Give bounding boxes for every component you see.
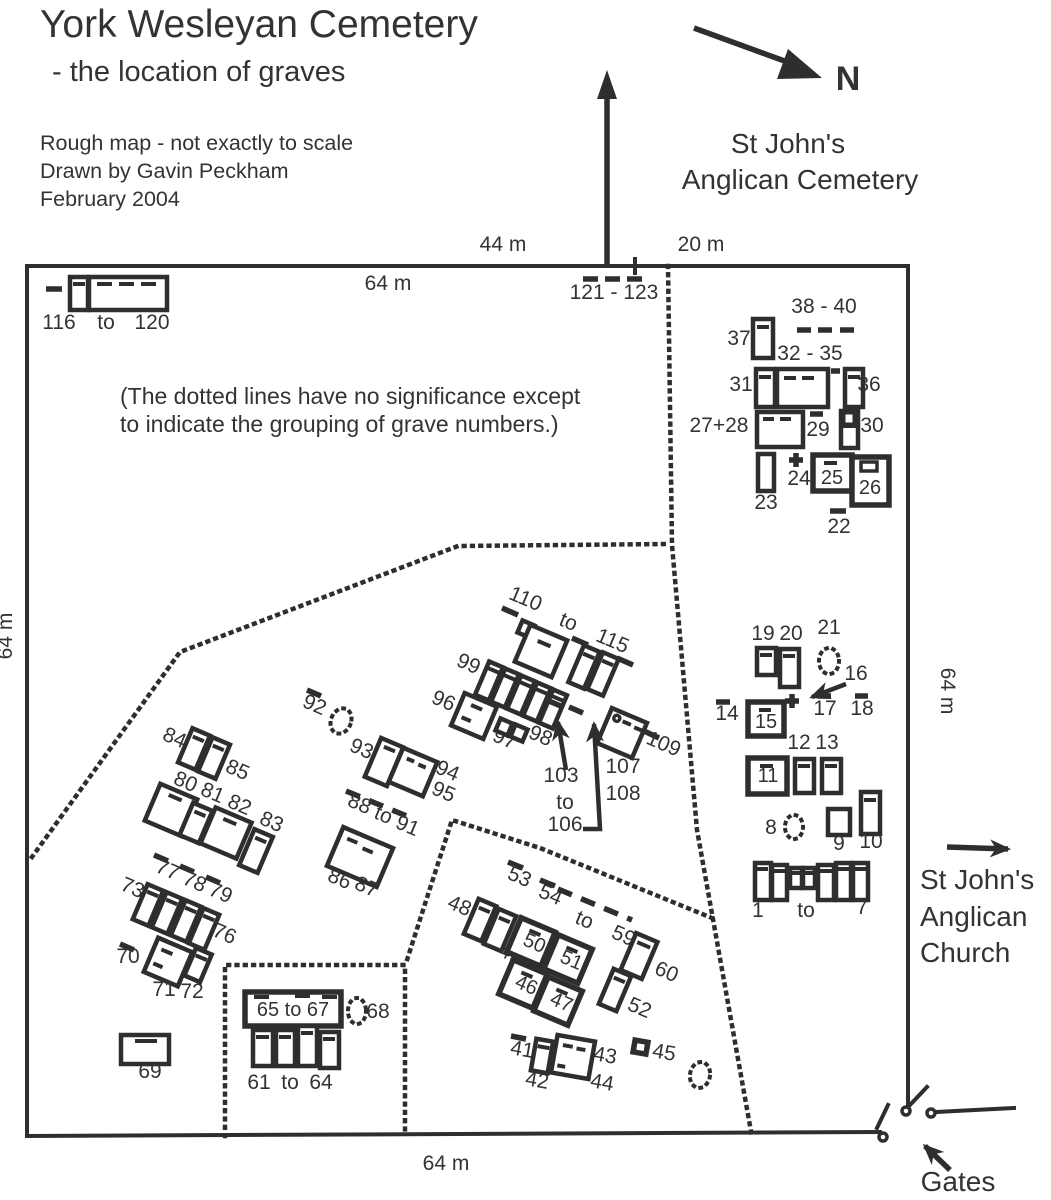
grave-label: 64 xyxy=(309,1071,333,1094)
grave-marking xyxy=(861,462,877,471)
grave-label: 85 xyxy=(222,755,252,785)
grave-label: 44 xyxy=(589,1069,616,1096)
grave-label: to xyxy=(97,311,115,334)
grave-rect xyxy=(758,454,774,491)
grave-rect xyxy=(756,369,775,407)
grave-label: 36 xyxy=(857,373,880,396)
headstone-dash xyxy=(538,1046,550,1048)
grave-label: 43 xyxy=(592,1042,619,1069)
credit-line: Rough map - not exactly to scale xyxy=(40,131,353,155)
anglican-church-label: St John's xyxy=(920,864,1034,895)
grave-label: 12 xyxy=(787,731,810,754)
graves-22-40: 38 - 40 37 32 - 35 31 36 27+28 29 30 23 … xyxy=(690,295,889,538)
anglican-cemetery-label: St John's xyxy=(731,128,845,159)
graves-41-60: 53 54 to 59 48 49 50 51 46 47 60 52 41 4… xyxy=(444,862,712,1096)
grave-label: 103 xyxy=(543,764,578,787)
grave-label: 19 xyxy=(751,622,774,645)
measure-top-west: 44 m xyxy=(480,233,527,256)
grave-rect xyxy=(510,724,527,741)
gate-hinge xyxy=(879,1133,887,1141)
grave-label: 68 xyxy=(366,1000,389,1023)
gates-label: Gates xyxy=(921,1166,996,1197)
grave-label: 77 xyxy=(152,855,182,885)
map-header: York Wesleyan Cemetery - the location of… xyxy=(40,3,478,211)
grave-label: 22 xyxy=(827,515,850,538)
grave-label: 106 xyxy=(547,813,582,836)
grave-label: 120 xyxy=(134,311,169,334)
headstone-dash xyxy=(617,658,633,665)
church-direction-arrow xyxy=(947,847,1008,849)
graves-86-95: 92 93 94 95 88 to 91 86 87 xyxy=(299,690,463,902)
grave-label: 10 xyxy=(859,830,882,853)
grave-label: 54 xyxy=(535,880,566,910)
grave-label: to xyxy=(797,899,815,922)
grave-label: 61 xyxy=(247,1071,270,1094)
page-subtitle: - the location of graves xyxy=(52,56,345,88)
grave-oval xyxy=(688,1060,712,1089)
north-label: N xyxy=(836,60,861,98)
grave-oval xyxy=(785,815,803,839)
gate-hinge xyxy=(927,1109,935,1117)
boundary-south xyxy=(27,1132,880,1136)
grave-label: 108 xyxy=(605,782,640,805)
grave-label: 13 xyxy=(815,731,838,754)
measure-east: 64 m xyxy=(936,668,959,715)
headstone-dash xyxy=(563,1045,573,1047)
grave-label: to xyxy=(572,906,597,934)
grave-label: 18 xyxy=(850,697,873,720)
north-arrow-head xyxy=(777,49,822,79)
cemetery-map-page: York Wesleyan Cemetery - the location of… xyxy=(0,0,1051,1200)
grave-label: 72 xyxy=(180,980,203,1003)
grave-label: 7 xyxy=(856,896,868,919)
fence-east xyxy=(936,1108,1014,1112)
graves-121-123: 121 - 123 xyxy=(570,279,659,304)
grave-label: 27+28 xyxy=(690,414,749,437)
grave-marking xyxy=(613,714,621,722)
headstone-dash xyxy=(557,1065,565,1066)
credit-line: Drawn by Gavin Peckham xyxy=(40,159,289,183)
grave-label: 32 - 35 xyxy=(777,342,842,365)
grave-label: 65 to 67 xyxy=(257,999,329,1021)
grave-label: 30 xyxy=(860,414,883,437)
grave-label: 37 xyxy=(727,327,750,350)
grave-label: 70 xyxy=(116,945,139,968)
grave-rect xyxy=(89,277,167,310)
gate-leaf xyxy=(877,1105,888,1128)
grave-label: 107 xyxy=(605,755,640,778)
graves-116-120: 116 to 120 xyxy=(42,277,169,334)
measure-top-east: 20 m xyxy=(678,233,725,256)
grave-label: 26 xyxy=(859,477,881,499)
headstone-dash xyxy=(577,1048,586,1050)
grave-label: 38 - 40 xyxy=(791,295,856,318)
graves-96-115: 110 to 115 99 96 97 98 109 103 to 106 10… xyxy=(428,582,684,836)
north-compass: N xyxy=(694,28,860,98)
grave-rect xyxy=(757,648,776,675)
grave-label: 15 xyxy=(755,711,777,733)
grave-label: 20 xyxy=(779,622,802,645)
gates xyxy=(877,1087,1014,1141)
headstone-dash xyxy=(569,707,583,713)
grave-label: 69 xyxy=(138,1060,161,1083)
grave-label: 78 xyxy=(179,867,209,897)
grave-label: to xyxy=(281,1071,299,1094)
grave-label: to xyxy=(556,791,574,814)
grave-label: 29 xyxy=(806,418,829,441)
grave-label: 31 xyxy=(729,373,752,396)
grave-oval xyxy=(348,998,366,1024)
grave-label: 17 xyxy=(813,697,836,720)
grave-label: 11 xyxy=(758,765,779,787)
grave-rect xyxy=(597,708,647,758)
note-line: to indicate the grouping of grave number… xyxy=(120,411,559,437)
grave-label: 24 xyxy=(787,467,811,490)
grave-marking xyxy=(846,415,853,423)
note-line: (The dotted lines have no significance e… xyxy=(120,383,581,409)
grave-label: 92 xyxy=(299,690,329,720)
grave-label: 9 xyxy=(833,832,845,855)
grave-rect xyxy=(777,369,828,407)
grave-label: 25 xyxy=(821,467,843,489)
grave-label: 8 xyxy=(765,816,777,839)
grave-label: 52 xyxy=(624,993,654,1023)
gate-leaf xyxy=(909,1087,927,1106)
page-title: York Wesleyan Cemetery xyxy=(40,3,478,46)
grave-rect xyxy=(599,969,631,1011)
grave-rect xyxy=(633,1040,648,1054)
grave-label: 42 xyxy=(524,1067,551,1094)
anglican-church-label: Anglican xyxy=(920,901,1027,932)
grave-label: 14 xyxy=(715,702,739,725)
anglican-church-label: Church xyxy=(920,937,1010,968)
grave-oval xyxy=(819,648,839,674)
map-note: (The dotted lines have no significance e… xyxy=(120,383,581,437)
credit-line: February 2004 xyxy=(40,187,180,211)
up-arrow-head xyxy=(597,70,617,99)
grave-label: 121 - 123 xyxy=(570,281,659,304)
grave-label: 116 xyxy=(42,311,75,334)
measure-west: 64 m xyxy=(0,613,17,660)
grave-rect xyxy=(753,319,773,358)
grave-label: 16 xyxy=(844,662,867,685)
grave-label: 99 xyxy=(453,649,483,679)
grave-label: 60 xyxy=(651,957,681,987)
grave-label: 23 xyxy=(754,491,777,514)
grave-rect xyxy=(551,1035,595,1079)
grave-label: to xyxy=(556,608,581,636)
grave-label: 81 xyxy=(197,778,227,808)
measure-south: 64 m xyxy=(423,1152,470,1175)
graves-1-21: 19 20 21 16 14 15 17 18 12 13 11 8 9 xyxy=(715,616,882,922)
measure-top-inner: 64 m xyxy=(365,272,412,295)
headstone-dash xyxy=(502,608,518,615)
grave-label: 1 xyxy=(752,899,764,922)
grave-label: 109 xyxy=(643,727,684,762)
grave-rect xyxy=(70,277,88,310)
grave-label: 96 xyxy=(428,686,458,716)
grave-label: 21 xyxy=(817,616,840,639)
dotted-boundary xyxy=(668,266,752,1137)
graves-61-68: 65 to 67 68 61 to 64 xyxy=(245,992,390,1094)
grave-label: 45 xyxy=(651,1039,678,1066)
grave-label: 71 xyxy=(152,978,175,1001)
cemetery-map: York Wesleyan Cemetery - the location of… xyxy=(0,0,1051,1200)
grave-oval xyxy=(327,705,356,737)
pointer-arrow xyxy=(558,722,566,770)
north-arrow-shaft xyxy=(694,28,790,63)
grave-label: 79 xyxy=(205,878,235,908)
grave-label: 53 xyxy=(504,862,534,892)
anglican-cemetery-label: Anglican Cemetery xyxy=(682,164,919,195)
grave-label: 91 xyxy=(392,811,422,841)
